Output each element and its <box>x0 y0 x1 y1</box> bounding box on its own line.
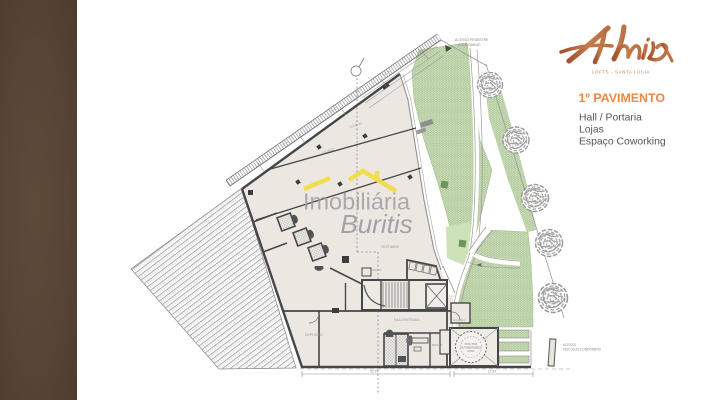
svg-text:SHAFT: SHAFT <box>372 268 382 272</box>
svg-text:Buritis: Buritis <box>340 209 412 239</box>
svg-text:VESTIARIO: VESTIARIO <box>381 245 399 249</box>
svg-text:HALL ENTRADA: HALL ENTRADA <box>394 318 420 322</box>
svg-text:RECEP.: RECEP. <box>432 343 443 347</box>
svg-text:ACESSO: ACESSO <box>563 343 577 347</box>
svg-text:GUARDA: GUARDA <box>453 318 465 322</box>
svg-text:30.59: 30.59 <box>370 370 378 374</box>
svg-text:ACESSO PEDESTRE: ACESSO PEDESTRE <box>455 38 489 42</box>
svg-text:LOFTS - SANTA LÚCIA: LOFTS - SANTA LÚCIA <box>592 70 650 75</box>
svg-text:1º PAVIMENTO: 1º PAVIMENTO <box>579 91 666 105</box>
svg-text:Espaço Coworking: Espaço Coworking <box>579 137 666 148</box>
svg-text:CONDOMINIO: CONDOMINIO <box>458 43 481 47</box>
svg-text:Hall / Portaria: Hall / Portaria <box>579 112 642 123</box>
svg-text:6.00m: 6.00m <box>467 349 474 353</box>
svg-text:VEICULOS CONDOMINIO: VEICULOS CONDOMINIO <box>563 348 602 352</box>
svg-text:DEPOSITO: DEPOSITO <box>305 333 323 337</box>
svg-text:PIVO TICK: PIVO TICK <box>465 342 478 346</box>
svg-text:Lojas: Lojas <box>579 124 604 135</box>
svg-text:AUTOMATIZADO: AUTOMATIZADO <box>461 346 481 350</box>
svg-text:17.64: 17.64 <box>488 370 496 374</box>
